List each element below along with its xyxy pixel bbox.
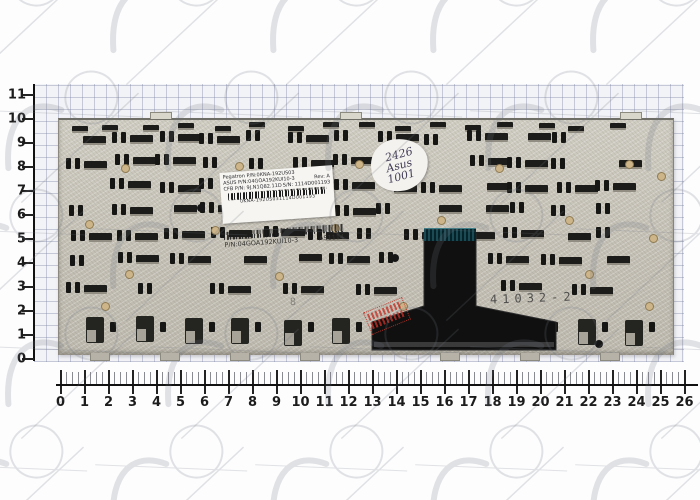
latch-clip xyxy=(147,283,152,294)
ruler-major-tick xyxy=(636,370,638,384)
latch-clip xyxy=(66,282,71,293)
latch-clip xyxy=(334,179,339,190)
latch-bar xyxy=(182,231,205,240)
ruler-minor-tick xyxy=(354,372,355,384)
latch-clip xyxy=(209,202,214,213)
latch-clip xyxy=(433,134,438,145)
latch-clip xyxy=(203,157,208,168)
ruler-minor-tick xyxy=(528,372,529,384)
latch-bar xyxy=(133,157,156,166)
ruler-minor-tick xyxy=(126,372,127,384)
latch-bar xyxy=(83,136,106,145)
ruler-minor-tick xyxy=(480,372,481,384)
mounting-tab xyxy=(230,353,250,361)
ruler-minor-tick xyxy=(594,372,595,384)
ruler-major-tick xyxy=(348,386,350,394)
latch-bar xyxy=(539,123,555,130)
latch-bar xyxy=(497,122,513,129)
bottom-ruler-label: 15 xyxy=(411,395,429,410)
bottom-ruler-label: 11 xyxy=(315,395,333,410)
latch-bar xyxy=(143,125,159,132)
ruler-minor-tick xyxy=(438,372,439,384)
bottom-ruler-label: 19 xyxy=(507,395,525,410)
latch-clip xyxy=(160,182,165,193)
ruler-minor-tick xyxy=(66,372,67,384)
bottom-ruler-label: 3 xyxy=(128,395,137,410)
latch-bar xyxy=(299,254,322,263)
latch-clip xyxy=(283,283,288,294)
latch-clip xyxy=(561,132,566,143)
latch-bar xyxy=(568,233,591,242)
latch-clip xyxy=(66,158,71,169)
latch-clip xyxy=(117,230,122,241)
latch-clip xyxy=(602,322,608,332)
bottom-ruler-label: 17 xyxy=(459,395,477,410)
latch-clip xyxy=(112,204,117,215)
ruler-minor-tick xyxy=(600,372,601,384)
bottom-ruler-label: 5 xyxy=(176,395,185,410)
hinge-slot-inner xyxy=(579,332,588,344)
watermark-tile xyxy=(0,0,107,95)
latch-bar xyxy=(306,135,329,144)
latch-clip xyxy=(333,154,338,165)
hinge-slot-inner xyxy=(137,329,146,341)
ruler-minor-tick xyxy=(336,372,337,384)
ruler-minor-tick xyxy=(582,372,583,384)
ruler-minor-tick xyxy=(390,372,391,384)
latch-bar xyxy=(568,126,584,133)
latch-bar xyxy=(89,233,112,242)
latch-clip xyxy=(112,132,117,143)
latch-clip xyxy=(343,179,348,190)
mounting-tab xyxy=(620,112,642,119)
ruler-major-tick xyxy=(636,386,638,394)
left-ruler-label: 11 xyxy=(2,88,26,103)
left-ruler-line xyxy=(33,84,35,361)
ruler-major-tick xyxy=(180,370,182,384)
latch-bar xyxy=(485,133,508,142)
latch-bar xyxy=(72,126,88,133)
screw-hole xyxy=(355,160,364,169)
screw-hole xyxy=(625,160,634,169)
latch-clip xyxy=(334,130,339,141)
left-ruler-label: 2 xyxy=(2,304,26,319)
screw-hole xyxy=(85,220,94,229)
ruler-minor-tick xyxy=(648,372,649,384)
latch-clip xyxy=(551,158,556,169)
ruler-minor-tick xyxy=(198,372,199,384)
ruler-minor-tick xyxy=(618,372,619,384)
latch-clip xyxy=(169,131,174,142)
latch-clip xyxy=(126,230,131,241)
latch-clip xyxy=(596,203,601,214)
ruler-major-tick xyxy=(156,370,158,384)
latch-clip xyxy=(199,178,204,189)
ruler-minor-tick xyxy=(186,372,187,384)
watermark-tile xyxy=(393,0,587,95)
hinge-slot xyxy=(231,318,249,344)
latch-clip xyxy=(596,227,601,238)
latch-bar xyxy=(439,205,462,214)
latch-clip xyxy=(551,205,556,216)
latch-clip xyxy=(335,205,340,216)
ruler-major-tick xyxy=(132,386,134,394)
latch-clip xyxy=(199,133,204,144)
watermark-tile xyxy=(0,387,107,500)
latch-clip xyxy=(595,180,600,191)
bottom-ruler-label: 13 xyxy=(363,395,381,410)
latch-clip xyxy=(119,178,124,189)
latch-clip xyxy=(121,132,126,143)
ruler-major-tick xyxy=(396,386,398,394)
latch-clip xyxy=(297,132,302,143)
ruler-minor-tick xyxy=(318,372,319,384)
ruler-minor-tick xyxy=(246,372,247,384)
latch-bar xyxy=(249,122,265,129)
latch-bar xyxy=(84,161,107,170)
latch-clip xyxy=(79,255,84,266)
ruler-major-tick xyxy=(468,386,470,394)
latch-clip xyxy=(507,157,512,168)
ruler-major-tick xyxy=(156,386,158,394)
ruler-major-tick xyxy=(204,370,206,384)
ruler-minor-tick xyxy=(630,372,631,384)
ruler-major-tick xyxy=(564,386,566,394)
ruler-major-tick xyxy=(588,386,590,394)
latch-clip xyxy=(519,202,524,213)
latch-clip xyxy=(179,253,184,264)
latch-bar xyxy=(178,123,194,130)
part-number-sticker: Pegatron P/N:0KNA-192US03 ASUS P/N:04GOA… xyxy=(219,165,335,224)
latch-bar xyxy=(607,256,630,265)
latch-bar xyxy=(359,122,375,129)
bottom-ruler-label: 24 xyxy=(627,395,645,410)
watermark-tile xyxy=(553,0,700,95)
ruler-minor-tick xyxy=(282,372,283,384)
bottom-ruler-label: 1 xyxy=(80,395,89,410)
latch-clip xyxy=(258,158,263,169)
bottom-ruler-label: 12 xyxy=(339,395,357,410)
latch-clip xyxy=(343,130,348,141)
ruler-minor-tick xyxy=(78,372,79,384)
ruler-minor-tick xyxy=(522,372,523,384)
ruler-major-tick xyxy=(540,370,542,384)
latch-clip xyxy=(69,205,74,216)
latch-clip xyxy=(516,182,521,193)
latch-bar xyxy=(613,183,636,192)
mounting-tab xyxy=(520,353,540,361)
ruler-major-tick xyxy=(324,386,326,394)
ruler-major-tick xyxy=(228,386,230,394)
latch-clip xyxy=(169,182,174,193)
latch-bar xyxy=(188,256,211,265)
latch-clip xyxy=(293,157,298,168)
latch-clip xyxy=(385,203,390,214)
ruler-minor-tick xyxy=(222,372,223,384)
ruler-major-tick xyxy=(300,370,302,384)
ruler-minor-tick xyxy=(654,372,655,384)
ruler-major-tick xyxy=(372,370,374,384)
left-ruler-label: 10 xyxy=(2,112,26,127)
ruler-major-tick xyxy=(348,370,350,384)
ruler-major-tick xyxy=(228,370,230,384)
latch-clip xyxy=(510,202,515,213)
ruler-minor-tick xyxy=(120,372,121,384)
ruler-minor-tick xyxy=(624,372,625,384)
latch-bar xyxy=(353,208,376,217)
ruler-major-tick xyxy=(420,386,422,394)
latch-clip xyxy=(552,132,557,143)
latch-clip xyxy=(376,203,381,214)
latch-clip xyxy=(124,154,129,165)
ruler-minor-tick xyxy=(330,372,331,384)
bottom-ruler-label: 14 xyxy=(387,395,405,410)
ruler-minor-tick xyxy=(486,372,487,384)
left-ruler-label: 7 xyxy=(2,184,26,199)
ruler-major-tick xyxy=(492,386,494,394)
latch-bar xyxy=(395,126,411,133)
bottom-ruler-label: 0 xyxy=(56,395,65,410)
latch-clip xyxy=(516,157,521,168)
latch-clip xyxy=(288,132,293,143)
latch-clip xyxy=(70,255,75,266)
ruler-minor-tick xyxy=(294,372,295,384)
bottom-ruler-label: 23 xyxy=(603,395,621,410)
ruler-minor-tick xyxy=(666,372,667,384)
ruler-minor-tick xyxy=(102,372,103,384)
latch-bar xyxy=(525,160,548,169)
latch-clip xyxy=(164,154,169,165)
bottom-ruler-label: 10 xyxy=(291,395,309,410)
mounting-tab xyxy=(300,353,320,361)
latch-bar xyxy=(525,185,548,194)
screw-hole xyxy=(275,272,284,281)
ruler-major-tick xyxy=(276,370,278,384)
ruler-major-tick xyxy=(612,370,614,384)
hinge-slot-inner xyxy=(186,331,195,343)
ruler-major-tick xyxy=(252,370,254,384)
ruler-minor-tick xyxy=(168,372,169,384)
hinge-slot-inner xyxy=(87,330,96,342)
latch-clip xyxy=(560,158,565,169)
hinge-slot-inner xyxy=(285,333,294,345)
ruler-major-tick xyxy=(108,370,110,384)
ruler-minor-tick xyxy=(360,372,361,384)
ruler-minor-tick xyxy=(210,372,211,384)
mounting-tab xyxy=(150,112,172,119)
latch-bar xyxy=(130,135,153,144)
latch-bar xyxy=(430,122,446,129)
latch-clip xyxy=(173,228,178,239)
ruler-minor-tick xyxy=(546,372,547,384)
ruler-minor-tick xyxy=(402,372,403,384)
ruler-major-tick xyxy=(276,386,278,394)
ruler-minor-tick xyxy=(474,372,475,384)
ruler-minor-tick xyxy=(642,372,643,384)
left-ruler-label: 5 xyxy=(2,232,26,247)
latch-clip xyxy=(344,205,349,216)
latch-clip xyxy=(110,178,115,189)
ruler-major-tick xyxy=(324,370,326,384)
latch-clip xyxy=(160,131,165,142)
ruler-major-tick xyxy=(516,386,518,394)
left-ruler-label: 9 xyxy=(2,136,26,151)
ruler-minor-tick xyxy=(534,372,535,384)
hinge-slot xyxy=(136,316,154,342)
bottom-ruler-label: 16 xyxy=(435,395,453,410)
ruler-minor-tick xyxy=(450,372,451,384)
ruler-minor-tick xyxy=(72,372,73,384)
bottom-ruler-label: 25 xyxy=(651,395,669,410)
hinge-slot xyxy=(578,319,596,345)
latch-clip xyxy=(155,154,160,165)
mounting-tab xyxy=(440,353,460,361)
ruler-major-tick xyxy=(204,386,206,394)
bottom-ruler-line xyxy=(56,384,698,386)
left-ruler-label: 6 xyxy=(2,208,26,223)
latch-clip xyxy=(75,158,80,169)
screw-hole xyxy=(121,164,130,173)
latch-bar xyxy=(217,136,240,145)
latch-bar xyxy=(130,207,153,216)
screw-hole xyxy=(495,164,504,173)
latch-bar xyxy=(178,185,201,194)
ruler-minor-tick xyxy=(270,372,271,384)
latch-bar xyxy=(528,133,551,142)
latch-clip xyxy=(208,133,213,144)
latch-clip xyxy=(605,227,610,238)
ruler-minor-tick xyxy=(342,372,343,384)
left-ruler-label: 8 xyxy=(2,160,26,175)
stamped-lot-number: 41032-2 xyxy=(490,290,576,307)
ruler-minor-tick xyxy=(432,372,433,384)
ruler-major-tick xyxy=(660,386,662,394)
ruler-minor-tick xyxy=(558,372,559,384)
ruler-major-tick xyxy=(684,370,686,384)
latch-bar xyxy=(323,122,339,129)
hinge-slot xyxy=(284,320,302,346)
ruler-minor-tick xyxy=(504,372,505,384)
product-photo-canvas: Pegatron P/N:0KNA-192US03 ASUS P/N:04GOA… xyxy=(0,0,700,500)
watermark-tile xyxy=(73,0,267,95)
ruler-minor-tick xyxy=(456,372,457,384)
latch-clip xyxy=(208,178,213,189)
latch-bar xyxy=(174,205,197,214)
latch-clip xyxy=(507,182,512,193)
faint-stamped-digit: 8 xyxy=(290,297,297,308)
ruler-major-tick xyxy=(468,370,470,384)
bottom-ruler-label: 9 xyxy=(272,395,281,410)
round-hole xyxy=(595,340,603,348)
ruler-major-tick xyxy=(252,386,254,394)
ruler-minor-tick xyxy=(378,372,379,384)
ruler-minor-tick xyxy=(570,372,571,384)
ruler-major-tick xyxy=(492,370,494,384)
ruler-major-tick xyxy=(132,370,134,384)
latch-bar xyxy=(173,157,196,166)
latch-bar xyxy=(486,205,509,214)
ruler-major-tick xyxy=(420,370,422,384)
hinge-slot-inner xyxy=(232,331,241,343)
screw-hole xyxy=(585,270,594,279)
mounting-tab xyxy=(600,353,620,361)
bottom-ruler-label: 22 xyxy=(579,395,597,410)
mounting-tab xyxy=(160,353,180,361)
ruler-minor-tick xyxy=(162,372,163,384)
ruler-minor-tick xyxy=(114,372,115,384)
latch-bar xyxy=(178,134,201,143)
latch-bar xyxy=(215,126,231,133)
hinge-slot xyxy=(625,320,643,346)
ruler-minor-tick xyxy=(606,372,607,384)
latch-clip xyxy=(209,322,215,332)
ruler-major-tick xyxy=(60,386,62,394)
screw-hole xyxy=(125,270,134,279)
ribbon-connector-contacts xyxy=(424,228,476,241)
ruler-minor-tick xyxy=(384,372,385,384)
latch-clip xyxy=(557,182,562,193)
ruler-major-tick xyxy=(588,370,590,384)
ruler-major-tick xyxy=(540,386,542,394)
latch-clip xyxy=(249,158,254,169)
ruler-major-tick xyxy=(60,370,62,384)
bottom-ruler-label: 7 xyxy=(224,395,233,410)
ruler-major-tick xyxy=(372,386,374,394)
ruler-major-tick xyxy=(180,386,182,394)
mounting-tab xyxy=(90,353,110,361)
left-ruler-label: 3 xyxy=(2,280,26,295)
bottom-ruler-label: 8 xyxy=(248,395,257,410)
ruler-major-tick xyxy=(684,386,686,394)
latch-clip xyxy=(219,283,224,294)
ruler-minor-tick xyxy=(264,372,265,384)
latch-clip xyxy=(75,282,80,293)
latch-clip xyxy=(378,131,383,142)
ruler-minor-tick xyxy=(144,372,145,384)
latch-bar xyxy=(244,256,267,265)
ruler-minor-tick xyxy=(414,372,415,384)
latch-clip xyxy=(342,154,347,165)
latch-clip xyxy=(255,322,261,332)
left-ruler-label: 4 xyxy=(2,256,26,271)
latch-bar xyxy=(590,287,613,296)
ruler-minor-tick xyxy=(462,372,463,384)
latch-clip xyxy=(127,252,132,263)
latch-bar xyxy=(610,123,626,130)
latch-clip xyxy=(115,154,120,165)
screw-hole xyxy=(565,216,574,225)
ruler-major-tick xyxy=(108,386,110,394)
hinge-slot-inner xyxy=(626,333,635,345)
ruler-minor-tick xyxy=(312,372,313,384)
ruler-minor-tick xyxy=(552,372,553,384)
ruler-minor-tick xyxy=(366,372,367,384)
latch-clip xyxy=(164,228,169,239)
ruler-major-tick xyxy=(564,370,566,384)
screw-hole xyxy=(645,302,654,311)
screw-hole xyxy=(437,216,446,225)
latch-clip xyxy=(566,182,571,193)
latch-clip xyxy=(329,253,334,264)
ruler-minor-tick xyxy=(174,372,175,384)
latch-bar xyxy=(352,182,375,191)
latch-bar xyxy=(228,286,251,295)
ruler-major-tick xyxy=(300,386,302,394)
ruler-minor-tick xyxy=(234,372,235,384)
ruler-major-tick xyxy=(396,370,398,384)
screw-hole xyxy=(211,226,220,235)
ruler-minor-tick xyxy=(192,372,193,384)
